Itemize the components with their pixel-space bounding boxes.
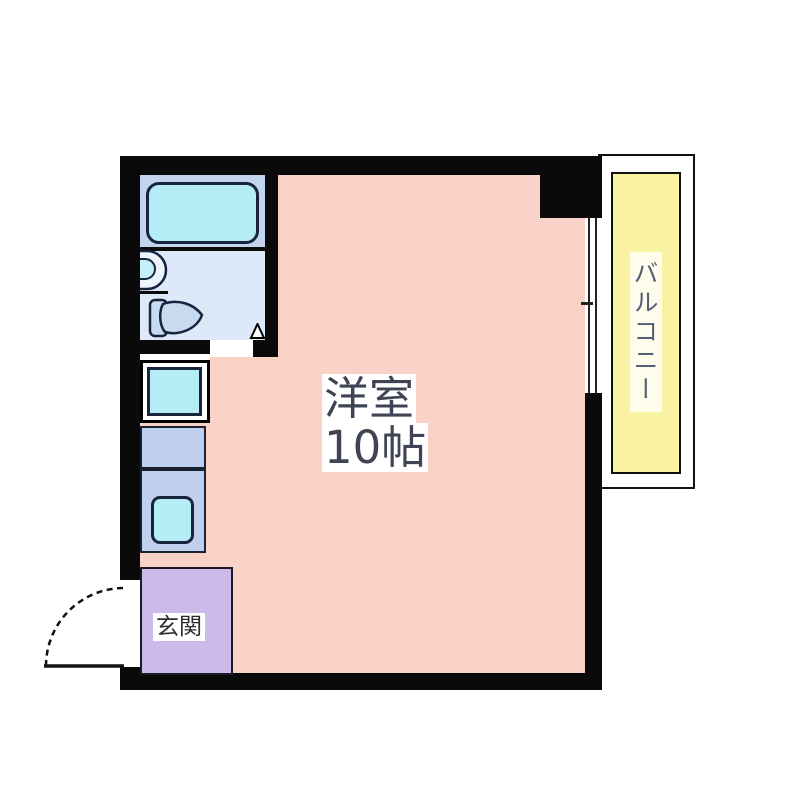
- kitchen-sink-icon: [151, 496, 194, 544]
- bathtub-icon: [146, 182, 259, 244]
- wall-corner-notch: [540, 156, 602, 218]
- main-room-label: 洋室 10帖: [322, 374, 428, 472]
- window-pane-line: [588, 218, 590, 393]
- kitchen-counter: [140, 426, 206, 469]
- window-pane-line: [595, 218, 597, 393]
- toilet-icon: [147, 295, 207, 340]
- floor-plan: 玄関 洋室 10帖 バルコニー: [0, 0, 800, 800]
- washing-machine-icon: [147, 367, 202, 416]
- main-room-size: 10帖: [322, 423, 428, 472]
- balcony-label: バルコニー: [630, 252, 662, 412]
- entry-door-swing-icon: [38, 575, 142, 679]
- bathroom-door-opening: [210, 340, 253, 357]
- entrance-label: 玄関: [153, 613, 205, 641]
- main-room-name: 洋室: [322, 374, 416, 423]
- window-latch-tick: [581, 302, 593, 305]
- bathroom-door-marker-icon: [249, 323, 266, 340]
- washbasin-icon: [140, 248, 168, 292]
